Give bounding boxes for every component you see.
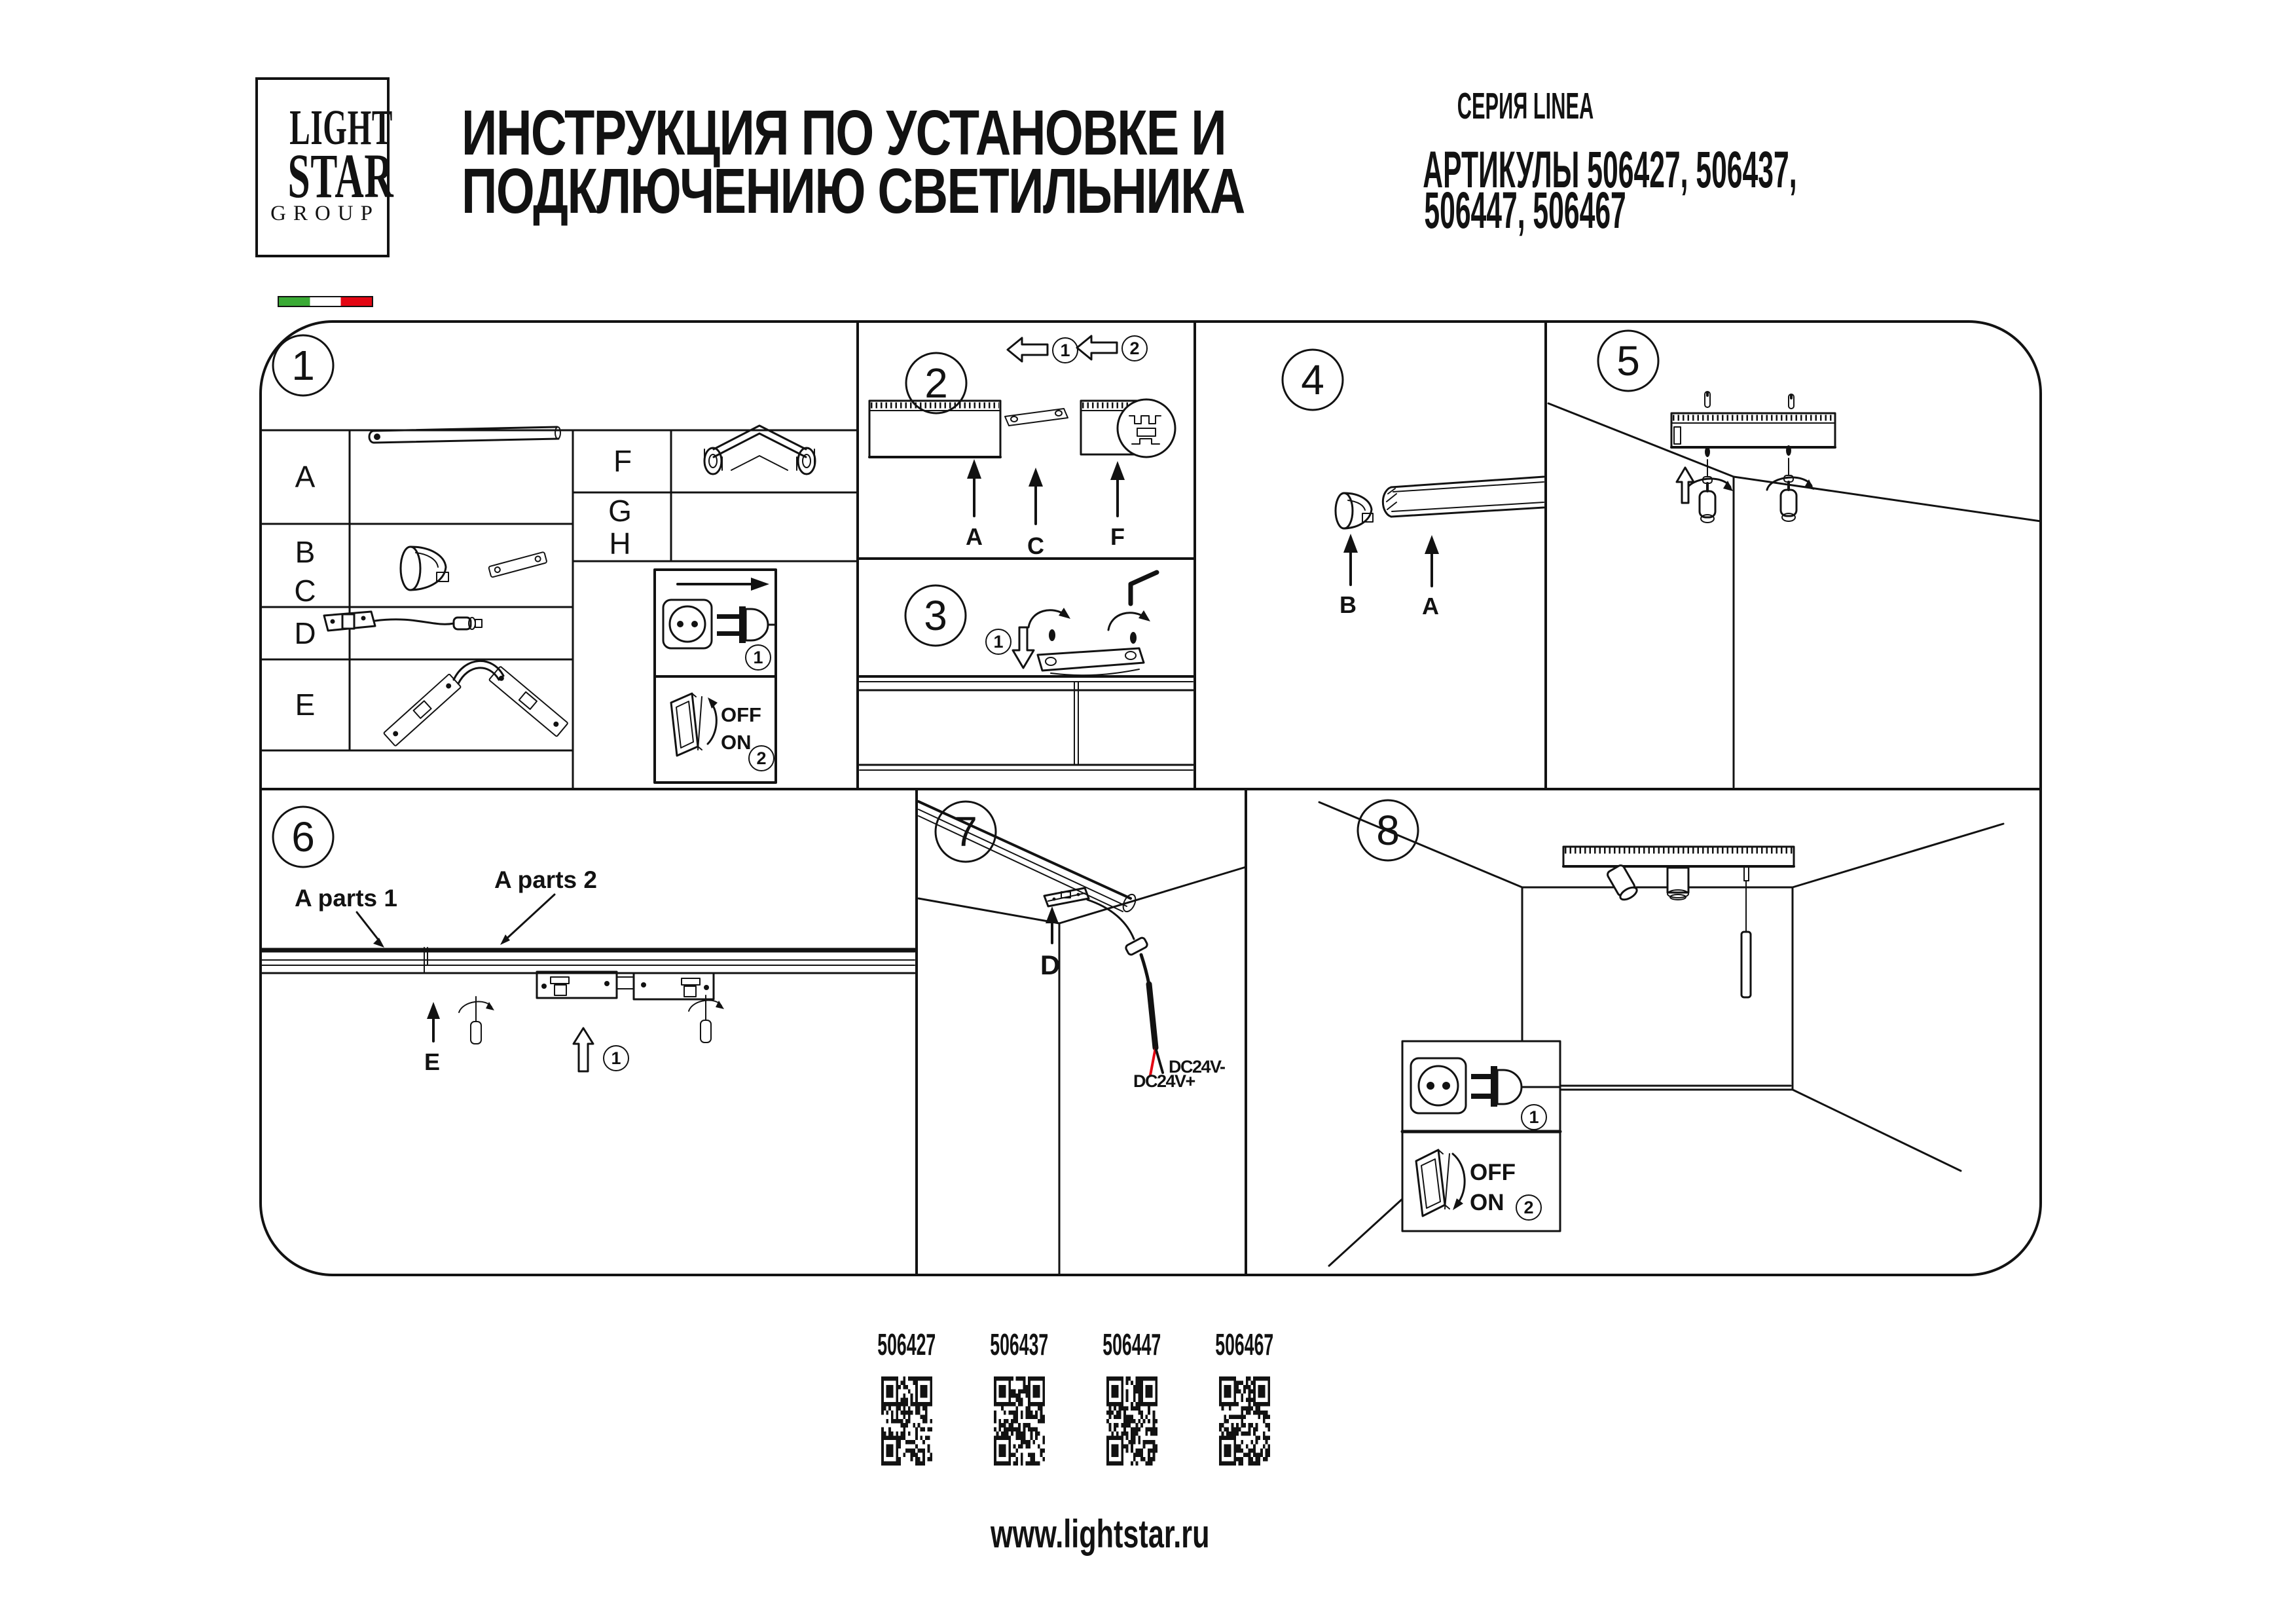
panel-2-number: 2: [924, 360, 948, 407]
series-name: СЕРИЯ LINEA: [1457, 86, 1594, 126]
step-1-badge: 1: [611, 1048, 621, 1068]
part-label-f: F: [613, 444, 632, 478]
panel-6-number: 6: [291, 813, 315, 860]
qr-item-506467: 506467: [1189, 1327, 1300, 1469]
press-down-arrow-icon: [1013, 627, 1034, 668]
instruction-sheet: LIGHT STAR GROUP ИНСТРУКЦИЯ ПО УСТАНОВКЕ…: [0, 0, 2296, 1624]
website-url: www.lightstar.ru: [910, 1511, 1290, 1557]
instruction-panels-diagram: 1 A B C D E F G H: [259, 320, 2043, 1279]
track-f-section-drawing: [1081, 399, 1175, 457]
endcap-b-drawing: [1336, 493, 1373, 528]
dc24v-plus-label: DC24V+: [1133, 1071, 1195, 1091]
callout-label-a: A: [1422, 593, 1439, 619]
logo-word-star: STAR: [288, 151, 394, 202]
off-label: OFF: [721, 703, 761, 726]
joined-track-underside: [262, 948, 915, 973]
italian-flag-bar: [278, 296, 373, 307]
part-label-h: H: [609, 526, 630, 561]
on-label: ON: [721, 731, 752, 754]
website-url-text: www.lightstar.ru: [991, 1511, 1209, 1557]
callout-arrows: [967, 459, 1125, 524]
a-parts-1-label: A parts 1: [295, 885, 397, 912]
title-line-1: ИНСТРУКЦИЯ ПО УСТАНОВКЕ И: [462, 103, 1226, 162]
qr-code: [1106, 1376, 1157, 1466]
part-label-g: G: [608, 494, 632, 528]
track-with-luminaires: [1563, 847, 1794, 997]
slide-arrow-2-icon: [1077, 336, 1117, 360]
connector-plate-drawing: [1038, 648, 1144, 675]
pendant-luminaire: [1741, 866, 1751, 997]
track-a-3d-drawing: [1383, 477, 1544, 517]
panel-8-finished-installation: 8: [1319, 800, 2003, 1266]
track-a-drawing: [869, 401, 1000, 457]
track-on-ceiling-drawing: [1671, 413, 1835, 447]
qr-code: [1219, 1376, 1270, 1466]
toggle-arrow: [708, 702, 716, 744]
panel-4-number: 4: [1301, 356, 1324, 403]
socket-icon: [663, 600, 712, 648]
qr-code-label: 506437: [990, 1327, 1048, 1362]
power-connect-legend: 1 OFF ON 2: [655, 570, 776, 783]
switch-icon: [671, 693, 702, 756]
plug-icon: [717, 606, 776, 643]
series-articles-block: СЕРИЯ LINEA АРТИКУЛЫ 506427, 506437, 506…: [1264, 86, 1787, 231]
connector-c-drawing: [1005, 409, 1068, 426]
off-label: OFF: [1470, 1160, 1516, 1185]
qr-item-506447: 506447: [1076, 1327, 1188, 1469]
articles-line-2: 506447, 506467: [1425, 190, 1626, 231]
qr-code-label: 506447: [1102, 1327, 1161, 1362]
feed-connector-d-drawing: [1044, 888, 1089, 906]
step-2-badge: 2: [756, 748, 766, 768]
callout-label-a: A: [966, 523, 983, 550]
callout-label-c: C: [1027, 532, 1044, 559]
part-label-d: D: [294, 616, 316, 650]
push-up-arrow-icon: [574, 1028, 593, 1071]
lightstar-logo: LIGHT STAR GROUP: [255, 77, 390, 257]
connector-e-drawing: [537, 972, 714, 999]
a-parts-2-label: A parts 2: [494, 866, 597, 893]
step-2-badge: 2: [1523, 1198, 1533, 1217]
qr-item-506427: 506427: [851, 1327, 962, 1469]
power-on-legend: 1 OFF ON 2: [1402, 1041, 1560, 1231]
dc-minus-wire: [1156, 1048, 1163, 1073]
callout-label-f: F: [1110, 523, 1125, 550]
step-2-badge: 2: [1129, 339, 1139, 358]
small-screwdrivers: [459, 995, 724, 1044]
callout-label-e: E: [424, 1048, 440, 1075]
panel-grid: [261, 322, 2041, 1275]
power-cable-drawing: [1087, 900, 1163, 1075]
panel-1-number: 1: [291, 342, 315, 389]
title-line-2: ПОДКЛЮЧЕНИЮ СВЕТИЛЬНИКА: [462, 162, 1245, 220]
panel-6-connect-sections: 6 A parts 1 A parts 2: [262, 807, 915, 1075]
step-1-badge: 1: [753, 648, 763, 667]
step-1-badge: 1: [1060, 341, 1070, 360]
part-drawing-corner-flex-e: [384, 661, 568, 746]
screwdrivers-and-screws: [1686, 445, 1814, 523]
qr-code: [881, 1376, 932, 1466]
panel-1-parts-table: 1 A B C D E F G H: [261, 335, 858, 789]
joined-track-side-view: [860, 676, 1193, 770]
qr-item-506437: 506437: [964, 1327, 1075, 1469]
part-label-b: B: [295, 535, 316, 569]
qr-code-label: 506427: [877, 1327, 936, 1362]
hex-key-icon: [1131, 572, 1157, 604]
panel-3-number: 3: [924, 592, 947, 639]
step-1-badge: 1: [993, 632, 1003, 652]
panel-4-end-cap: 4 B A: [1283, 350, 1544, 619]
on-label: ON: [1470, 1190, 1504, 1215]
step-1-badge: 1: [1529, 1107, 1539, 1127]
panel-5-ceiling-mount: 5: [1548, 331, 2041, 787]
ceiling-corner-lines: [1548, 403, 2041, 787]
part-label-e: E: [295, 688, 316, 722]
slide-arrow-1-icon: [1008, 338, 1048, 361]
panel-2-join-tracks: 2 1 2: [869, 336, 1175, 559]
part-drawing-corner-track-f: [704, 426, 815, 474]
part-label-a: A: [295, 460, 316, 494]
qr-code: [994, 1376, 1045, 1466]
spot-luminaire: [1606, 864, 1639, 902]
panel-7-power-feed: 7 D: [919, 802, 1246, 1275]
part-label-c: C: [294, 574, 316, 608]
dowels: [1705, 392, 1794, 409]
callout-label-b: B: [1339, 591, 1357, 618]
cylinder-luminaire: [1667, 868, 1688, 900]
panel-3-screw-connector: 3 1: [860, 572, 1193, 770]
qr-code-label: 506467: [1215, 1327, 1273, 1362]
screws-and-turn-arrows: [1029, 608, 1150, 644]
panel-5-number: 5: [1616, 337, 1640, 384]
callout-label-d: D: [1040, 950, 1060, 980]
part-drawing-feed-d: [324, 612, 482, 631]
part-drawing-endcap-bc: [401, 547, 547, 590]
